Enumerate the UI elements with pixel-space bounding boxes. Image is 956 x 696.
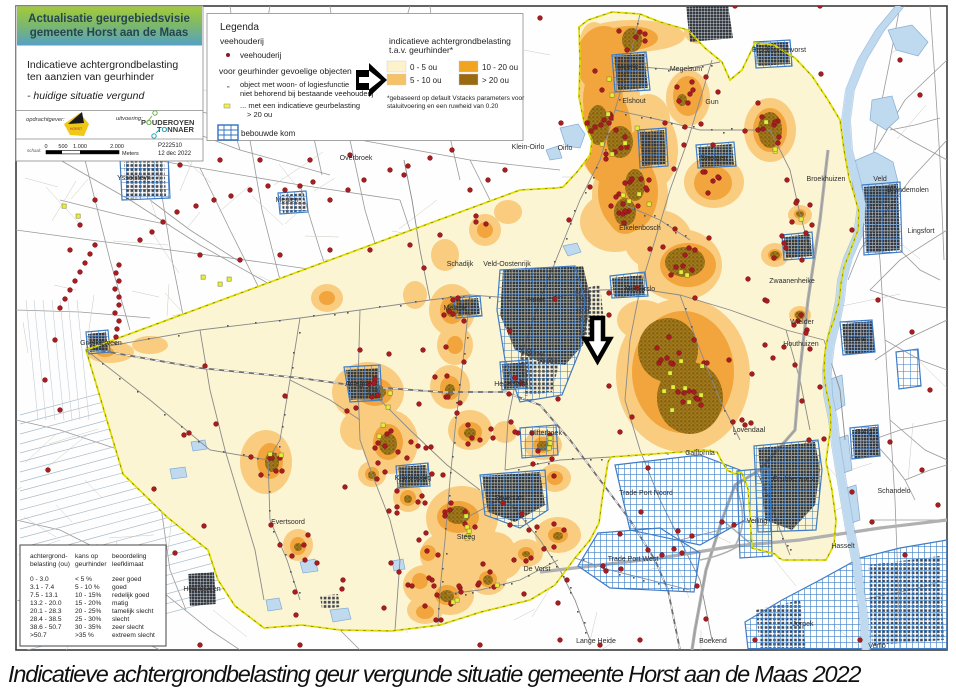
svg-text:Grubbenvorst: Grubbenvorst	[773, 476, 815, 483]
svg-text:Meulen: Meulen	[276, 197, 299, 204]
svg-text:object met woon- of logiesfunc: object met woon- of logiesfunctie	[240, 80, 349, 89]
svg-text:500: 500	[58, 144, 67, 150]
svg-text:Trade Port West: Trade Port West	[608, 556, 659, 563]
svg-text:28.4 - 38.5: 28.4 - 38.5	[30, 616, 62, 623]
svg-text:0 - 5 ou: 0 - 5 ou	[410, 63, 437, 72]
svg-text:Lingsfort: Lingsfort	[908, 228, 935, 235]
svg-text:Schadijk: Schadijk	[447, 261, 474, 268]
svg-text:veehouderij: veehouderij	[220, 36, 264, 46]
svg-text:Veld-Oostenrijk: Veld-Oostenrijk	[483, 261, 531, 268]
svg-text:HORST: HORST	[70, 127, 83, 131]
svg-text:niet behorend bij bestaande ve: niet behorend bij bestaande veehouderij	[240, 89, 374, 98]
svg-text:California: California	[685, 450, 715, 457]
svg-text:> 20 ou: > 20 ou	[482, 76, 509, 85]
svg-text:5 - 10 ou: 5 - 10 ou	[410, 76, 442, 85]
svg-text:Griendtsveen: Griendtsveen	[80, 340, 122, 347]
svg-text:t.a.v. geurhinder*: t.a.v. geurhinder*	[389, 45, 454, 55]
svg-text:redelijk goed: redelijk goed	[112, 592, 150, 599]
svg-text:slecht: slecht	[112, 616, 129, 623]
svg-text:matig: matig	[112, 600, 128, 607]
svg-text:Elshout: Elshout	[622, 98, 645, 105]
svg-text:Houthuizen: Houthuizen	[783, 341, 819, 348]
svg-text:Broekhuizenvorst: Broekhuizenvorst	[752, 47, 806, 54]
svg-text:Lottum: Lottum	[845, 336, 867, 343]
svg-text:America: America	[345, 381, 371, 388]
svg-text:Megelsum: Megelsum	[670, 66, 702, 73]
svg-text:Trade Port Noord: Trade Port Noord	[619, 490, 673, 497]
svg-text:Kronenberg: Kronenberg	[395, 475, 432, 482]
svg-text:kans op: kans op	[75, 553, 98, 560]
svg-text:0 - 3.0: 0 - 3.0	[30, 576, 49, 583]
svg-text:Swolgen: Swolgen	[701, 155, 728, 162]
svg-text:Indicatieve achtergrondbelasti: Indicatieve achtergrondbelasting	[27, 59, 178, 71]
svg-text:bebouwde kom: bebouwde kom	[241, 129, 296, 138]
svg-text:20.1 - 28.3: 20.1 - 28.3	[30, 608, 62, 615]
svg-text:extreem slecht: extreem slecht	[112, 632, 155, 639]
svg-text:- huidige situatie vergund: - huidige situatie vergund	[27, 90, 145, 102]
svg-text:0: 0	[44, 144, 47, 150]
svg-text:Veiling: Veiling	[747, 518, 768, 525]
svg-text:Hasselt: Hasselt	[831, 543, 854, 550]
svg-text:geurhinder: geurhinder	[75, 561, 107, 568]
svg-text:2.000: 2.000	[110, 144, 124, 150]
svg-text:Hegelsom: Hegelsom	[494, 381, 526, 388]
svg-text:Sevenum: Sevenum	[494, 495, 524, 502]
svg-text:zeer slecht: zeer slecht	[112, 624, 144, 631]
svg-text:< 5 %: < 5 %	[75, 576, 92, 583]
svg-text:Veld: Veld	[873, 176, 887, 183]
svg-text:Ysselsteyn: Ysselsteyn	[117, 175, 151, 182]
svg-text:Bong: Bong	[856, 429, 872, 436]
svg-text:Meterik: Meterik	[444, 305, 467, 312]
svg-text:>35 %: >35 %	[75, 632, 94, 639]
svg-text:38.6 - 50.7: 38.6 - 50.7	[30, 624, 62, 631]
svg-text:zeer goed: zeer goed	[112, 576, 142, 583]
svg-text:tamelijk slecht: tamelijk slecht	[112, 608, 154, 615]
svg-text:Meerlo: Meerlo	[617, 64, 639, 71]
svg-text:Helenaveen: Helenaveen	[183, 586, 220, 593]
svg-text:belasting (ou): belasting (ou)	[30, 561, 70, 568]
svg-text:goed: goed	[112, 584, 127, 591]
svg-text:Boekend: Boekend	[699, 638, 727, 645]
svg-text:15 - 20%: 15 - 20%	[75, 600, 102, 607]
svg-text:staluitvoering en een ruwheid: staluitvoering en een ruwheid van 0.20	[387, 103, 499, 110]
svg-text:Brandemolen: Brandemolen	[887, 187, 929, 194]
svg-text:Lange Heide: Lange Heide	[576, 638, 616, 645]
svg-text:10 - 15%: 10 - 15%	[75, 592, 102, 599]
svg-text:*gebaseerd op default Vstacks: *gebaseerd op default Vstacks parameters…	[387, 95, 525, 102]
svg-text:> 20 ou: > 20 ou	[247, 110, 272, 119]
svg-text:Ulfterhoek: Ulfterhoek	[530, 430, 562, 437]
svg-text:TONNAER: TONNAER	[157, 125, 195, 134]
svg-text:7.5 - 13.1: 7.5 - 13.1	[30, 592, 58, 599]
svg-text:12 dec 2022: 12 dec 2022	[158, 151, 192, 157]
svg-text:Melderslo: Melderslo	[625, 286, 655, 293]
svg-text:Wielder: Wielder	[790, 319, 814, 326]
svg-text:Overbroek: Overbroek	[340, 155, 373, 162]
svg-text:veehouderij: veehouderij	[240, 51, 282, 60]
svg-text:leefklimaat: leefklimaat	[112, 561, 144, 568]
svg-text:1.000: 1.000	[73, 144, 87, 150]
svg-text:achtergrond-: achtergrond-	[30, 553, 67, 560]
svg-text:Steeg: Steeg	[457, 534, 475, 541]
svg-text:P222510: P222510	[158, 143, 183, 149]
svg-text:Eikelenbosch: Eikelenbosch	[619, 225, 661, 232]
svg-text:Lovendaal: Lovendaal	[733, 427, 766, 434]
svg-text:3.1 - 7.4: 3.1 - 7.4	[30, 584, 55, 591]
svg-text:>50.7: >50.7	[30, 632, 47, 639]
svg-text:30 - 35%: 30 - 35%	[75, 624, 102, 631]
svg-text:Klein-Oirlo: Klein-Oirlo	[512, 144, 545, 151]
svg-text:25 - 30%: 25 - 30%	[75, 616, 102, 623]
svg-text:Actualisatie geurgebiedsvisie: Actualisatie geurgebiedsvisie	[28, 13, 190, 25]
svg-text:Venlo: Venlo	[868, 643, 886, 650]
svg-text:5 - 10 %: 5 - 10 %	[75, 584, 100, 591]
svg-text:Schandelo: Schandelo	[877, 488, 910, 495]
svg-text:Legenda: Legenda	[220, 22, 259, 33]
svg-text:De Vorst: De Vorst	[524, 566, 551, 573]
svg-text:uitvoering:: uitvoering:	[116, 116, 143, 122]
svg-text:voor geurhinder gevoelige obje: voor geurhinder gevoelige objecten	[219, 66, 352, 76]
svg-text:Broekhuizen: Broekhuizen	[807, 176, 846, 183]
svg-text:beoordeling: beoordeling	[112, 553, 147, 560]
svg-text:ten aanzien van geurhinder: ten aanzien van geurhinder	[27, 71, 155, 83]
svg-text:Meters: Meters	[122, 151, 139, 157]
svg-text:gemeente Horst aan de Maas: gemeente Horst aan de Maas	[30, 27, 189, 39]
svg-text:... met een indicatieve geurbe: ... met een indicatieve geurbelasting	[240, 101, 360, 110]
svg-text:schaal:: schaal:	[27, 148, 42, 153]
svg-text:10 - 20 ou: 10 - 20 ou	[482, 63, 518, 72]
svg-text:13.2 - 20.0: 13.2 - 20.0	[30, 600, 62, 607]
svg-text:20 - 25%: 20 - 25%	[75, 608, 102, 615]
svg-text:Horst: Horst	[528, 297, 545, 304]
svg-text:opdrachtgever:: opdrachtgever:	[26, 117, 65, 123]
svg-text:Gun: Gun	[705, 99, 718, 106]
svg-text:Jorpek: Jorpek	[792, 621, 814, 628]
svg-text:Evertsoord: Evertsoord	[271, 519, 305, 526]
svg-text:Oirlo: Oirlo	[558, 145, 573, 152]
svg-text:Zwaanenheike: Zwaanenheike	[769, 278, 815, 285]
